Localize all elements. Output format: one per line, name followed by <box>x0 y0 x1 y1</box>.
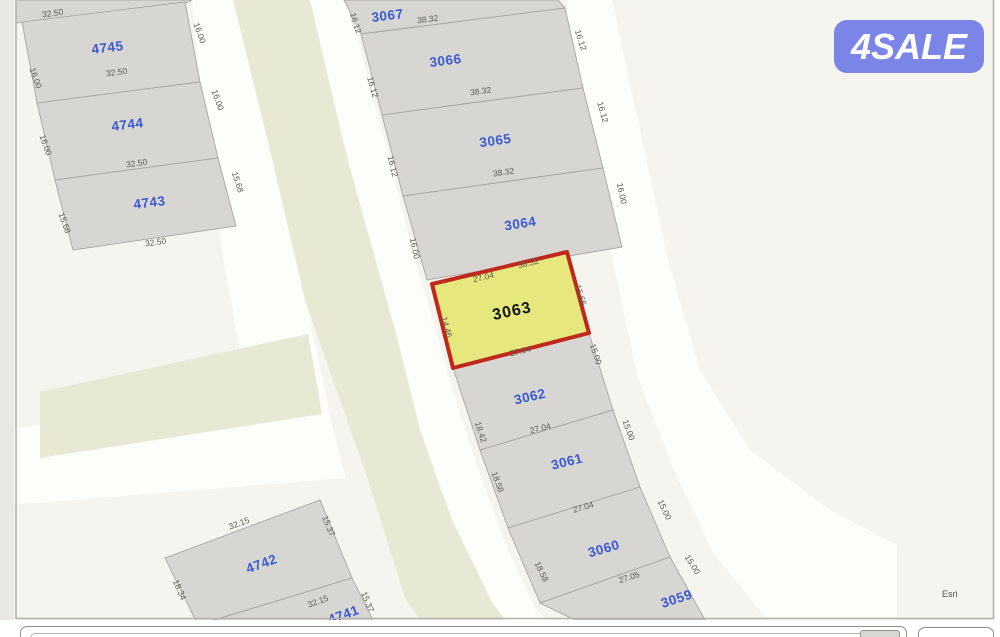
bottom-panel-input[interactable] <box>30 633 896 637</box>
forsale-logo: 4SALE <box>834 20 984 73</box>
esri-attribution: Esri <box>942 589 958 599</box>
right-margin <box>994 0 1000 620</box>
forsale-logo-text: 4SALE <box>851 26 967 68</box>
bottom-panel-button[interactable] <box>860 630 900 637</box>
map-viewer-window: 4745 4744 4743 3067 3066 3065 3064 3063 … <box>0 0 1000 637</box>
window-edge-strip <box>0 0 14 637</box>
bottom-bar <box>0 620 1000 637</box>
parcel-map-canvas[interactable]: 4745 4744 4743 3067 3066 3065 3064 3063 … <box>0 0 1000 620</box>
bottom-side-panel[interactable] <box>918 627 994 637</box>
